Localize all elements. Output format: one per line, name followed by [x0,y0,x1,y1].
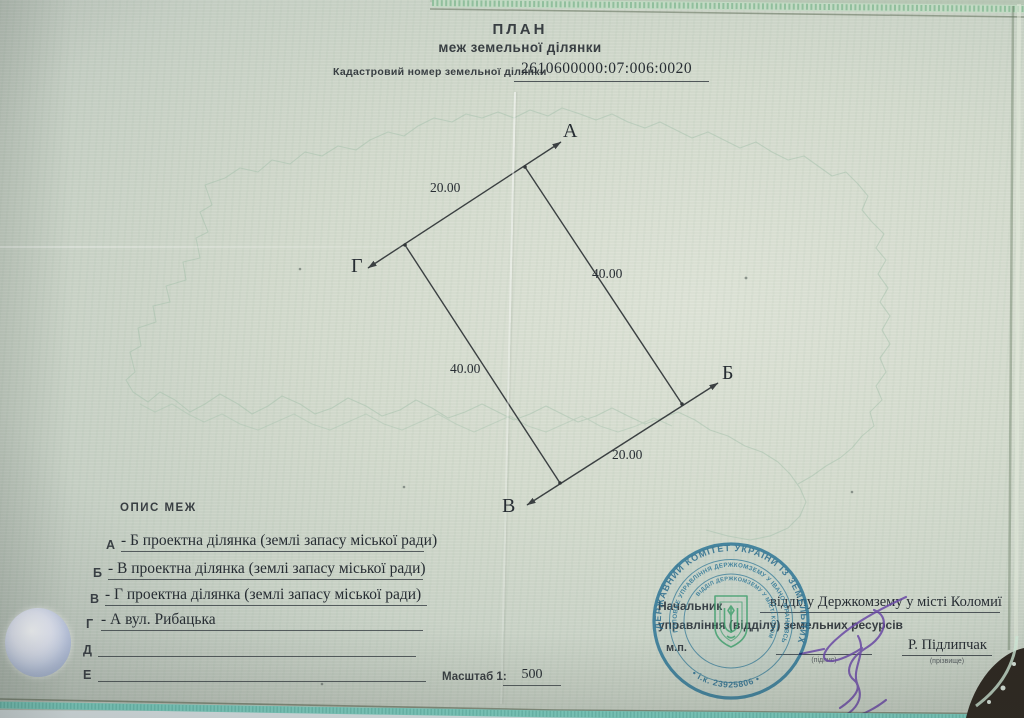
sleeve-bottom-edge [0,699,1024,718]
sleeve-top-zipper [430,0,1024,17]
official-round-stamp: ДЕРЖАВНИЙ КОМІТЕТ УКРАЇНИ ІЗ ЗЕМЕЛЬНИХ Р… [653,543,809,698]
sleeve-bottom-right-corner [966,636,1024,718]
photo-canvas: ПЛАН меж земельної ділянки Кадастровий н… [0,0,1024,718]
sleeve-right-edge [1009,4,1019,650]
hologram-sticker [5,608,71,677]
handwritten-signature [800,597,906,716]
